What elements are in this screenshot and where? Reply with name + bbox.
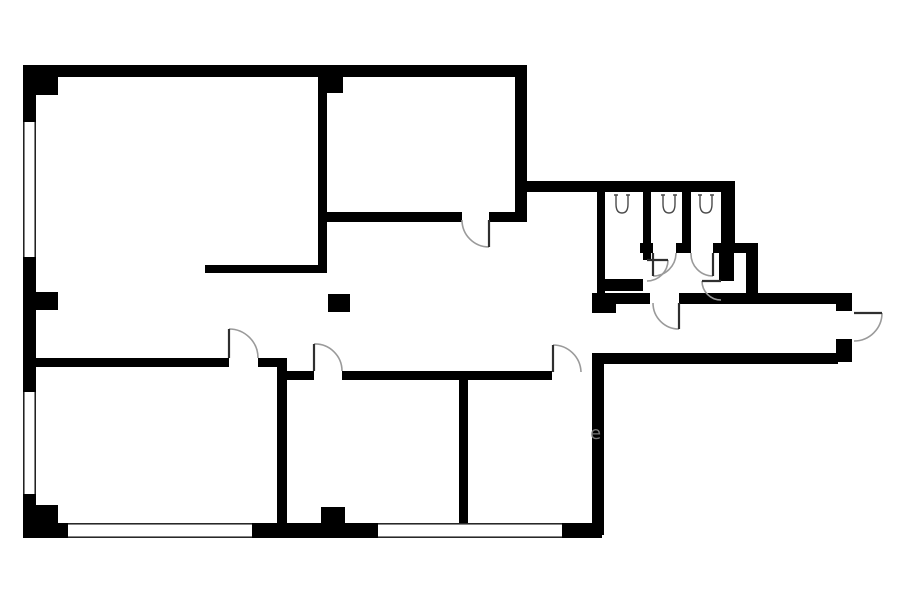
wall-segment	[721, 181, 735, 243]
door-bottom-right-room-arc	[553, 345, 581, 372]
door-main-entrance-arc	[854, 313, 882, 341]
wall-segment	[36, 75, 58, 95]
walls-layer	[23, 65, 852, 538]
watermark-text: e	[590, 423, 601, 444]
wall-segment	[605, 279, 643, 291]
wall-segment	[342, 371, 552, 380]
door-wc-lobby-entry-arc	[653, 303, 679, 329]
wall-segment	[23, 65, 527, 77]
wall-segment	[527, 181, 597, 192]
wall-segment	[836, 339, 852, 362]
door-bottom-middle-room-arc	[314, 344, 342, 371]
floor-plan: e	[0, 0, 900, 604]
wall-segment	[592, 353, 838, 364]
windows-layer	[23, 122, 562, 538]
wall-segment	[489, 212, 527, 222]
wall-segment	[676, 243, 691, 253]
wall-segment	[328, 294, 350, 312]
wall-segment	[318, 212, 462, 222]
door-wc-stall-2-arc	[653, 253, 676, 276]
wall-segment	[592, 356, 604, 535]
wall-segment	[597, 181, 735, 192]
wall-segment	[23, 257, 36, 392]
watermark-layer: e	[590, 423, 601, 444]
wall-segment	[287, 371, 314, 380]
door-wc-stall-3-arc	[691, 253, 713, 276]
wall-segment	[318, 65, 327, 273]
fixtures-layer	[614, 195, 714, 213]
wall-segment	[746, 243, 758, 303]
wall-segment	[36, 505, 58, 525]
wall-segment	[836, 293, 852, 311]
toilet-icon	[700, 195, 712, 213]
wall-segment	[327, 77, 343, 93]
wall-segment	[321, 507, 345, 524]
wall-segment	[36, 292, 58, 310]
wall-segment	[23, 65, 36, 122]
wall-segment	[277, 358, 287, 538]
wall-segment	[252, 523, 378, 538]
toilet-icon	[663, 195, 675, 213]
window-opening	[378, 523, 562, 538]
window-opening	[68, 523, 252, 538]
wall-segment	[640, 243, 653, 253]
window-opening	[23, 392, 36, 494]
wall-segment	[758, 293, 838, 304]
wall-segment	[592, 293, 616, 313]
wall-segment	[515, 65, 527, 222]
door-bottom-left-room-arc	[229, 329, 258, 358]
wall-segment	[597, 181, 605, 303]
door-top-middle-room-arc	[462, 220, 489, 247]
door-wc-stall-1-arc	[647, 260, 668, 281]
wall-segment	[459, 375, 468, 525]
window-opening	[23, 122, 36, 257]
wall-segment	[205, 265, 327, 273]
wall-segment	[23, 523, 68, 538]
wall-segment	[36, 358, 229, 367]
floor-plan-svg: e	[0, 0, 900, 604]
toilet-icon	[616, 195, 628, 213]
wall-segment	[719, 253, 734, 281]
